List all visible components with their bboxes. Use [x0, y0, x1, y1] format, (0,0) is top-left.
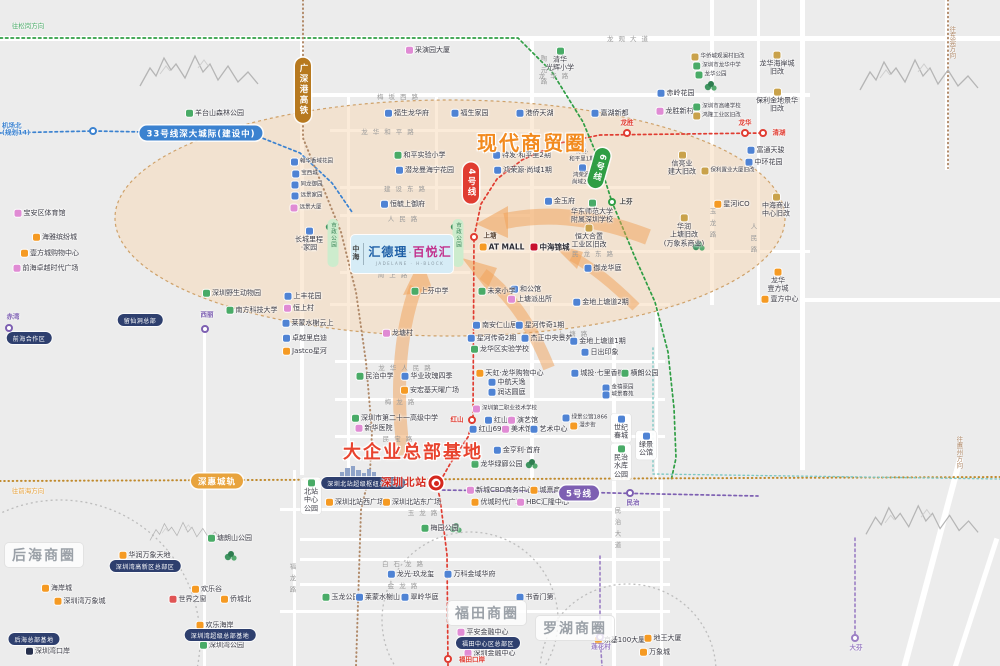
poi-label: 城景春苑: [602, 392, 633, 399]
poi-icon-b: [402, 372, 409, 379]
poi-label: 金地上塘道1期: [570, 337, 625, 345]
metro-station-label: 西丽: [201, 311, 214, 318]
poi-icon-g: [422, 524, 429, 531]
poi-icon-g: [622, 369, 629, 376]
poi-label: 宝西城: [292, 171, 318, 178]
poi-label: 保利金地景华 旧改: [756, 89, 798, 114]
metro-station-label: 上塘: [484, 232, 497, 239]
poi-icon-p: [502, 425, 509, 432]
poi-icon-t: [773, 194, 780, 201]
direction-label: 往松岗方向: [12, 23, 45, 31]
poi-label: 翰华香域花园: [291, 159, 333, 166]
poi-label: 深圳第二职业技术学校: [473, 406, 537, 413]
road-name-label: 玉龙路: [408, 507, 443, 517]
poi-icon-o: [401, 386, 408, 393]
metro-station-label: 民治: [627, 499, 640, 506]
metro-rail-line: [653, 348, 1000, 479]
poi-label: 富通天骏: [748, 146, 785, 154]
metro-station-label: 上芬: [620, 198, 633, 205]
poi-label: 羊台山森林公园: [186, 109, 244, 117]
poi-icon-b: [292, 171, 299, 178]
poi-icon-p: [508, 416, 515, 423]
poi-icon-p: [406, 46, 413, 53]
logo-title-blue: 汇德理: [368, 243, 407, 260]
poi-icon-p: [458, 628, 465, 635]
poi-icon-o: [221, 595, 228, 602]
metro-station-dot: [470, 233, 478, 241]
poi-icon-o: [714, 200, 721, 207]
poi-label: 清华 光辉小学: [546, 48, 574, 73]
poi-label: 深圳北站西广场: [326, 498, 384, 506]
poi-label: 潜龙曼海宁花园: [396, 166, 454, 174]
poi-label: 未来小学: [479, 287, 516, 295]
trees-icon: [705, 81, 717, 91]
poi-icon-g: [203, 289, 210, 296]
poi-icon-g: [618, 445, 625, 452]
poi-icon-b: [516, 321, 523, 328]
poi-label: AT MALL: [480, 243, 525, 252]
poi-icon-g: [308, 479, 315, 486]
zone-pill: 后海总部基地: [8, 633, 59, 645]
poi-label: 星河传奇2期: [468, 334, 516, 342]
poi-icon-o: [283, 347, 290, 354]
map-canvas[interactable]: 市政公园市政公园羊台山森林公园采演园大厦清华 光辉小学赤岭花园龙胜新村华侨城观澜…: [0, 0, 1000, 666]
poi-label: 深圳市高峰学校: [693, 104, 741, 111]
poi-label: 赤岭花园: [658, 89, 695, 97]
poi-label: 前海卓越时代广场: [14, 264, 79, 272]
poi-icon-b: [291, 159, 298, 166]
poi-icon-p: [517, 498, 524, 505]
metro-station-label: 赤湾: [7, 313, 20, 320]
poi-label: 星河传奇1期: [516, 321, 564, 329]
poi-icon-g: [695, 72, 702, 79]
poi-label: 新城CBD商务中心: [467, 486, 533, 494]
shenzhen-north-station-label: 深圳北站: [381, 477, 427, 490]
poi-icon-b: [563, 415, 570, 422]
poi-label: 龙光·玖龙玺: [388, 570, 434, 578]
poi-label: 新华医院: [356, 424, 393, 432]
metro-station-dot: [759, 129, 767, 137]
poi-label: 宝安区体育馆: [15, 209, 66, 217]
poi-label: 莱蒙水榭云上: [283, 319, 334, 327]
poi-icon-b: [396, 166, 403, 173]
poi-icon-b: [643, 433, 650, 440]
poi-icon-p: [284, 304, 291, 311]
poi-icon-p: [383, 329, 390, 336]
poi-label: 欢乐海岸: [197, 621, 234, 629]
road-name-label: 梅龙路: [385, 396, 420, 406]
poi-icon-b: [582, 348, 589, 355]
poi-label: 长城里程 ·家园: [295, 228, 323, 253]
metro-station-label: 红山: [451, 416, 464, 423]
poi-icon-p: [657, 107, 664, 114]
poi-label: 恒毓上御府: [381, 200, 425, 208]
poi-label: 上塘派出所: [508, 295, 552, 303]
poi-label: 翠岭华庭: [402, 593, 439, 601]
metro-line-pill: 5号线: [559, 486, 599, 501]
poi-icon-p: [356, 424, 363, 431]
poi-icon-b: [283, 319, 290, 326]
metro-station-dot: [89, 127, 97, 135]
poi-icon-o: [120, 551, 127, 558]
poi-icon-b: [385, 109, 392, 116]
poi-icon-t: [701, 168, 708, 175]
road-name-label: 人民路: [748, 223, 758, 258]
poi-icon-b: [602, 392, 609, 399]
park-strip: 市政公园: [453, 219, 464, 267]
poi-label: 梅园公园: [422, 524, 459, 532]
zone-pill: 前海合作区: [7, 332, 52, 344]
poi-icon-b: [285, 292, 292, 299]
poi-label: 远景家园: [291, 193, 322, 200]
poi-icon-g: [395, 151, 402, 158]
poi-label: 华侨城观澜村旧改: [691, 54, 744, 61]
poi-icon-b: [748, 146, 755, 153]
poi-icon-o: [197, 621, 204, 628]
poi-label: 上芬中学: [412, 287, 449, 295]
poi-label: 龙华海岸城 旧改: [760, 52, 795, 77]
poi-label: 保利置业大厦旧改: [701, 168, 754, 175]
poi-icon-g: [323, 593, 330, 600]
poi-icon-z: [531, 244, 538, 251]
poi-icon-g: [412, 287, 419, 294]
poi-label: 民治 水库 公园: [611, 443, 631, 480]
poi-icon-b: [489, 378, 496, 385]
mountain-sketch-icon: [140, 56, 258, 86]
road-name-label: 龙观大道: [607, 33, 653, 43]
poi-icon-g: [471, 345, 478, 352]
mountain-sketch-icon: [860, 60, 978, 90]
poi-icon-g: [557, 48, 564, 55]
poi-label: Jastco星河: [283, 347, 327, 355]
shenzhen-north-station-icon: [429, 476, 444, 491]
poi-icon-b: [473, 321, 480, 328]
poi-label: 深圳市第二十一高级中学: [352, 414, 438, 422]
poi-label: 龙塘村: [383, 329, 413, 337]
poi-icon-o: [383, 498, 390, 505]
poi-label: 城投·七里香榭: [571, 369, 624, 377]
metro-line-pill: 深惠城轨: [191, 474, 243, 489]
poi-label: 深圳湾万象城: [55, 597, 106, 605]
road-name-label: 建设东路: [384, 183, 430, 193]
poi-label: 和平实验小学: [395, 151, 446, 159]
poi-label: 金地上塘道2期: [573, 298, 628, 306]
poi-icon-o: [645, 634, 652, 641]
poi-label: 星河iCO: [714, 200, 749, 208]
poi-label: 万象城: [640, 648, 670, 656]
business-circle-label: 后海商圈: [5, 543, 83, 567]
poi-label: 横朗公园: [622, 369, 659, 377]
poi-icon-b: [592, 109, 599, 116]
poi-label: 民治中学: [357, 372, 394, 380]
district-title: 现代商贸圈: [477, 131, 587, 155]
poi-label: 远景大厦: [290, 205, 321, 212]
metro-station-dot: [5, 324, 13, 332]
poi-label: 南安仁山居: [473, 321, 517, 329]
logo-title-pink: 百悦汇: [413, 243, 452, 260]
poi-icon-g: [693, 63, 700, 70]
poi-icon-o: [192, 585, 199, 592]
metro-line-pill: 33号线深大城际(建设中): [139, 126, 262, 141]
poi-icon-d: [26, 647, 33, 654]
zone-pill: 福田中心区总部区: [456, 637, 520, 649]
poi-icon-b: [571, 369, 578, 376]
metro-station-label: 机场北 (规划14): [2, 123, 30, 138]
metro-station-dot: [626, 489, 634, 497]
poi-icon-b: [602, 385, 609, 392]
poi-icon-o: [21, 249, 28, 256]
poi-label: 艺术中心: [531, 425, 568, 433]
mountain-sketch-icon: [160, 60, 209, 74]
poi-label: 平安金融中心: [458, 628, 509, 636]
poi-label: 中海锦城: [531, 243, 570, 252]
poi-label: 中环花园: [746, 158, 783, 166]
metro-station-label: 龙胜: [621, 119, 634, 126]
poi-icon-g: [200, 641, 207, 648]
poi-icon-o: [472, 498, 479, 505]
poi-label: 优城时代广场: [472, 498, 523, 506]
poi-icon-b: [381, 200, 388, 207]
poi-icon-g: [186, 109, 193, 116]
poi-icon-o: [55, 597, 62, 604]
road-name-label: 金龙路: [388, 580, 423, 590]
mountain-sketch-icon: [866, 506, 978, 535]
poi-label: 和公馆: [511, 285, 541, 293]
poi-icon-b: [494, 166, 501, 173]
poi-label: 安宏基天曜广场: [401, 386, 459, 394]
poi-label: 日出印象: [582, 348, 619, 356]
poi-label: 润达圆庭: [489, 388, 526, 396]
poi-label: 恒大合置 工业区旧改: [572, 225, 607, 250]
poi-icon-b: [585, 264, 592, 271]
poi-icon-p: [473, 406, 480, 413]
metro-station-label: 福田口岸: [459, 656, 485, 663]
poi-icon-b: [402, 593, 409, 600]
poi-icon-t: [691, 54, 698, 61]
road-name-label: 白石龙路: [382, 558, 428, 568]
zone-pill: 深圳湾超级总部基地: [185, 629, 256, 641]
poi-label: 南方科技大学: [227, 306, 278, 314]
poi-label: 福生龙华府: [385, 109, 429, 117]
poi-label: 壹方城购物中心: [21, 249, 79, 257]
poi-label: 深圳湾口岸: [26, 647, 70, 655]
poi-icon-b: [485, 416, 492, 423]
poi-label: 龙华区实验学校: [471, 345, 529, 353]
metro-line-pill: 广深港高铁: [295, 58, 311, 123]
poi-icon-b: [570, 337, 577, 344]
mountain-sketch-icon: [162, 525, 191, 533]
poi-icon-t: [586, 225, 593, 232]
poi-icon-o: [762, 295, 769, 302]
road-name-label: 民治大道: [612, 507, 622, 553]
poi-icon-r: [170, 595, 177, 602]
district-title: 大企业总部基地: [343, 442, 483, 464]
poi-label: 玉龙公园: [323, 593, 360, 601]
metro-line-pill: 4号线: [463, 163, 479, 204]
poi-label: 华东师范大学 附属深圳学校: [571, 200, 613, 225]
poi-label: 同龙御园: [291, 182, 322, 189]
trees-icon: [526, 459, 538, 469]
poi-icon-t: [679, 152, 686, 159]
poi-label: 美术馆: [502, 425, 532, 433]
poi-icon-o: [33, 233, 40, 240]
poi-icon-p: [467, 486, 474, 493]
metro-station-dot: [851, 634, 859, 642]
business-circle-label: 福田商圈: [448, 601, 526, 625]
poi-label: 信亮业 建大旧改: [668, 152, 696, 177]
poi-icon-p: [14, 264, 21, 271]
poi-icon-t: [774, 89, 781, 96]
poi-label: 华业玫瑰四季: [402, 372, 453, 380]
direction-label: 往东莞方向: [947, 26, 955, 59]
poi-label: 侨城北: [221, 595, 251, 603]
poi-icon-o: [476, 369, 483, 376]
poi-icon-o: [42, 584, 49, 591]
poi-icon-b: [306, 228, 313, 235]
poi-icon-b: [545, 197, 552, 204]
poi-label: 杰正中央景苑: [522, 334, 573, 342]
poi-icon-b: [531, 425, 538, 432]
metro-rail-line: [0, 477, 1000, 481]
metro-station-label: 莲花村: [591, 643, 611, 650]
poi-icon-o: [570, 423, 577, 430]
poi-label: 恒上村: [284, 304, 314, 312]
metro-station-dot: [608, 198, 616, 206]
poi-icon-b: [494, 446, 501, 453]
mountain-sketch-icon: [880, 64, 929, 78]
poi-label: 莱蒙水榭山: [356, 593, 400, 601]
poi-icon-t: [681, 214, 688, 221]
project-logo-card: 中 海 汇德理 · 百悦汇 JADELANE · H-BLOCK: [351, 235, 453, 273]
poi-icon-b: [445, 570, 452, 577]
mountain-sketch-icon: [885, 510, 932, 523]
poi-label: 卓越里启迪: [283, 334, 327, 342]
poi-label: 龙华公园: [695, 72, 726, 79]
poi-label: 演艺馆: [508, 416, 538, 424]
poi-label: 嘉湖新都: [592, 109, 629, 117]
poi-icon-b: [522, 334, 529, 341]
poi-icon-b: [517, 593, 524, 600]
business-circle-label: 罗湖商圈: [536, 616, 614, 640]
poi-label: 深圳野生动物园: [203, 289, 261, 297]
road-name-label: 梅坂西路: [377, 91, 423, 101]
poi-icon-p: [15, 209, 22, 216]
metro-station-dot: [444, 655, 452, 663]
poi-label: 鸿隆工业区旧改: [693, 113, 741, 120]
metro-station-dot: [201, 325, 209, 333]
metro-station-dot: [623, 129, 631, 137]
logo-divider: [363, 243, 364, 265]
zone-pill: 深圳湾高新区总部区: [110, 560, 181, 572]
poi-label: 海雅缤纷城: [33, 233, 77, 241]
road-name-label: 民龙东路: [572, 248, 618, 258]
poi-icon-g: [693, 104, 700, 111]
poi-label: 北站 中心 公园: [301, 477, 321, 514]
logo-dot: ·: [408, 248, 411, 259]
poi-label: 万科金域华府: [445, 570, 496, 578]
road-name-label: 龙华人民路: [378, 362, 436, 372]
road-name-label: 龙华和平路: [361, 126, 419, 136]
poi-icon-b: [579, 164, 586, 171]
poi-icon-b: [470, 425, 477, 432]
poi-icon-g: [589, 200, 596, 207]
poi-label: 御龙华庭: [585, 264, 622, 272]
poi-label: 华润万象天地: [120, 551, 171, 559]
poi-label: 深圳湾公园: [200, 641, 244, 649]
poi-icon-b: [573, 298, 580, 305]
poi-icon-o: [640, 648, 647, 655]
poi-icon-b: [291, 193, 298, 200]
poi-label: 金亨利·首府: [494, 446, 540, 454]
poi-label: 中海商业 中心旧改: [762, 194, 790, 219]
poi-icon-b: [356, 593, 363, 600]
poi-label: 中航天逸: [489, 378, 526, 386]
brand-zhonghai: 中 海: [352, 246, 359, 261]
poi-icon-p: [508, 295, 515, 302]
metro-station-label: 龙华: [739, 119, 752, 126]
poi-icon-p: [290, 205, 297, 212]
park-strip: 市政公园: [328, 219, 339, 267]
poi-icon-g: [357, 372, 364, 379]
poi-label: 漫步街: [570, 423, 596, 430]
poi-label: 世界之窗: [170, 595, 207, 603]
poi-label: 龙华 壹方城: [768, 269, 789, 294]
poi-label: 地王大厦: [645, 634, 682, 642]
poi-label: 壹方中心: [762, 295, 799, 303]
poi-label: 书香门第: [517, 593, 554, 601]
poi-icon-b: [452, 109, 459, 116]
poi-label: 深圳市龙华中学: [693, 63, 741, 70]
poi-icon-g: [352, 414, 359, 421]
metro-station-dot: [468, 416, 476, 424]
poi-icon-o: [326, 498, 333, 505]
logo-subtitle: JADELANE · H-BLOCK: [376, 261, 445, 266]
poi-icon-g: [479, 287, 486, 294]
poi-icon-t: [774, 52, 781, 59]
poi-icon-b: [388, 570, 395, 577]
poi-label: 塘朗山公园: [208, 534, 252, 542]
poi-label: 深圳北站东广场: [383, 498, 441, 506]
poi-label: 海岸城: [42, 584, 72, 592]
poi-label: 华润 上塘旧改 (万象系商业): [664, 214, 704, 247]
poi-icon-b: [291, 182, 298, 189]
zone-pill: 留仙洞总部: [118, 314, 163, 326]
poi-label: 福生家园: [452, 109, 489, 117]
trees-icon: [225, 551, 237, 561]
direction-label: 往惠州方向: [954, 436, 962, 469]
poi-icon-b: [517, 109, 524, 116]
poi-label: 上丰花园: [285, 292, 322, 300]
metro-station-dot: [741, 129, 749, 137]
poi-label: 绿景 公馆: [636, 431, 656, 460]
poi-icon-b: [489, 388, 496, 395]
poi-icon-g: [227, 306, 234, 313]
poi-label: 金禧豪园: [602, 385, 633, 392]
poi-icon-g: [208, 534, 215, 541]
poi-label: 天虹·龙华购物中心: [476, 369, 543, 377]
poi-label: 龙胜新村: [657, 107, 694, 115]
poi-label: 绿景公馆1866: [563, 415, 608, 422]
poi-icon-t: [693, 113, 700, 120]
road-name-label: 人民路: [388, 213, 423, 223]
poi-label: 世纪 春城: [611, 414, 631, 443]
metro-station-label: 大芬: [850, 644, 863, 651]
poi-icon-o: [775, 269, 782, 276]
poi-icon-o: [531, 486, 538, 493]
road-name-label: 玉龙路: [707, 208, 717, 243]
poi-icon-b: [283, 334, 290, 341]
poi-label: 采演园大厦: [406, 46, 450, 54]
